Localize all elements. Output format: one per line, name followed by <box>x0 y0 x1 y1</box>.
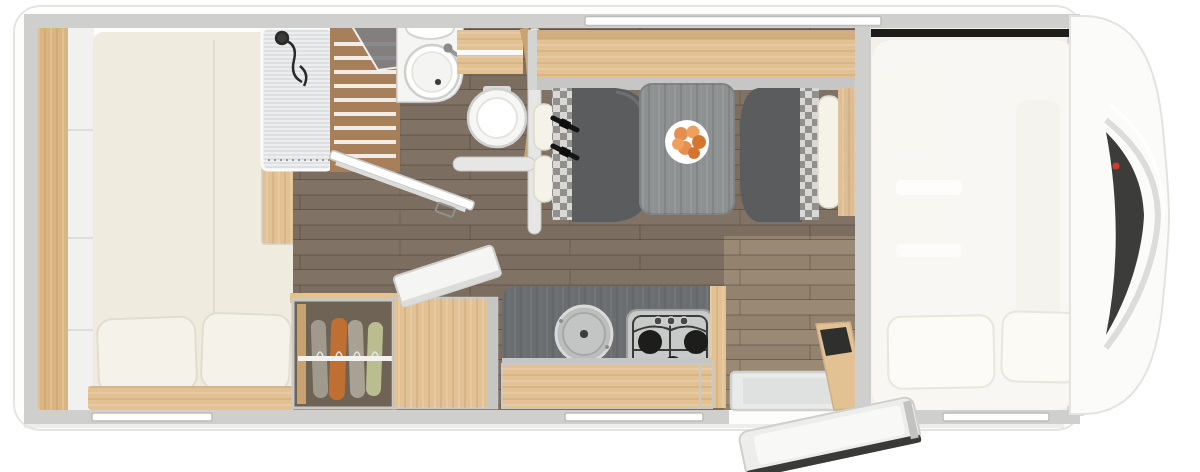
seat-armrest <box>896 244 962 257</box>
dinette-table <box>640 84 734 214</box>
drawer-grain <box>502 364 712 408</box>
pillow-right <box>1001 311 1079 383</box>
vanity-shelf-edge <box>457 50 523 55</box>
burner <box>638 330 662 354</box>
mirror-marker-icon <box>1113 163 1120 170</box>
driver-cab <box>868 28 1079 410</box>
dinette <box>528 30 860 222</box>
headrest-pad <box>534 104 554 150</box>
basin-bowl <box>412 52 452 92</box>
pillow-left <box>97 316 198 393</box>
shelf-back-edge <box>530 30 860 39</box>
toilet-seat <box>477 98 517 138</box>
pillow-right <box>201 312 292 391</box>
shower-glass-wall <box>262 28 332 170</box>
floorplan-canvas: Top-down floor plan rendering of a motor… <box>0 0 1200 472</box>
kitchen-window <box>565 413 703 421</box>
box-frame <box>488 298 497 408</box>
wall-top <box>24 14 1080 28</box>
hob-knobs <box>654 317 688 325</box>
kitchen-block <box>502 286 726 408</box>
fruit <box>692 135 706 149</box>
vehicle-front <box>1070 16 1169 414</box>
entry-step-tread <box>743 378 841 404</box>
foot-rail-grain <box>88 386 294 410</box>
cab-partition-wall <box>855 28 871 410</box>
bed-frame-bar <box>868 29 1076 37</box>
pillow-left <box>887 315 994 389</box>
dinette-right-bench <box>740 88 857 222</box>
headrest-pad <box>818 96 840 208</box>
cab-step-slot <box>943 413 1049 421</box>
frame-grain <box>838 88 857 216</box>
basin-drain <box>435 79 441 85</box>
shelf-left-cap <box>528 30 537 90</box>
floorplan-image: Top-down floor plan rendering of a motor… <box>0 0 1200 472</box>
headrest-pad <box>534 156 554 202</box>
wall-rear <box>24 14 38 424</box>
dinette-window <box>585 17 881 26</box>
bathroom-partition-horizontal <box>453 157 535 171</box>
sink-with-lid <box>556 306 612 362</box>
wardrobe <box>290 293 398 408</box>
wardrobe-side <box>297 304 306 404</box>
fruit <box>672 138 684 150</box>
cab-bed-pillows <box>887 311 1079 389</box>
bench-backrest <box>740 88 802 222</box>
bench-fabric-side <box>800 88 819 220</box>
lid-knob <box>580 330 588 338</box>
bedroom-window <box>92 413 212 421</box>
headboard-grain <box>38 28 68 410</box>
side-cabinets <box>68 28 94 410</box>
fruit-plate <box>665 120 709 164</box>
box-grain <box>393 298 497 408</box>
hanger-rail <box>298 356 392 361</box>
fruit <box>688 147 700 159</box>
seat-armrest <box>896 180 962 195</box>
burner <box>684 330 708 354</box>
bed-pillows <box>97 312 292 393</box>
